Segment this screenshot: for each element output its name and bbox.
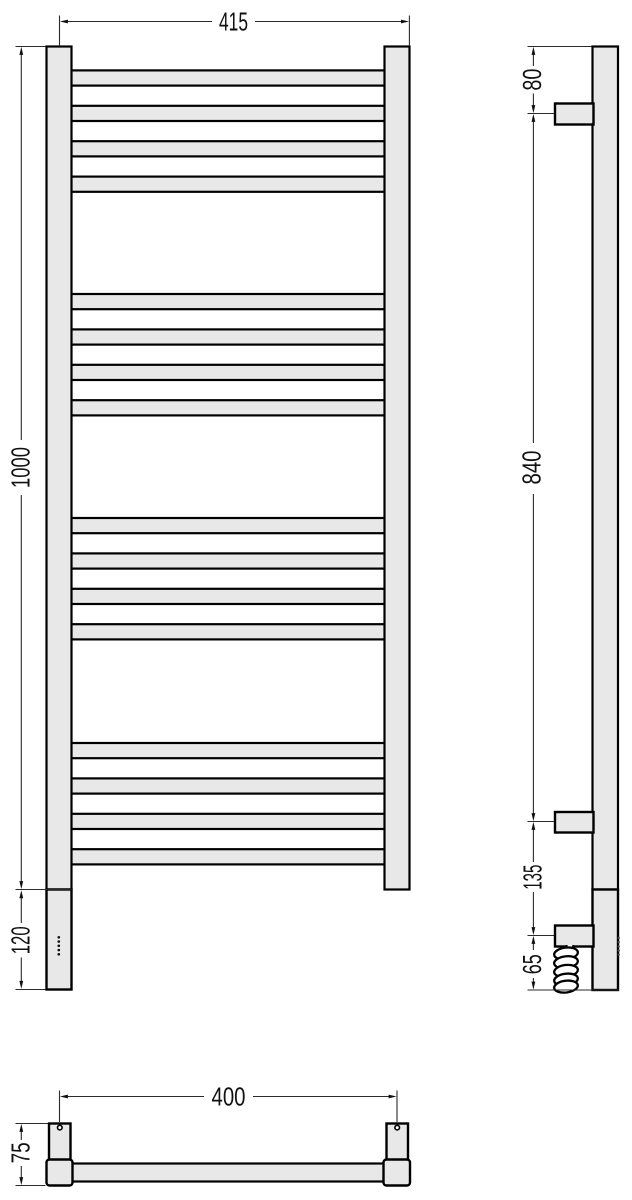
svg-text:135: 135 [518, 865, 548, 890]
svg-text:400: 400 [212, 1081, 246, 1111]
svg-text:840: 840 [517, 451, 547, 485]
svg-text:80: 80 [517, 69, 547, 91]
svg-text:415: 415 [219, 6, 248, 36]
svg-text:1000: 1000 [6, 447, 36, 488]
svg-text:65: 65 [517, 954, 547, 974]
svg-text:75: 75 [6, 1142, 36, 1163]
svg-text:120: 120 [5, 926, 35, 954]
